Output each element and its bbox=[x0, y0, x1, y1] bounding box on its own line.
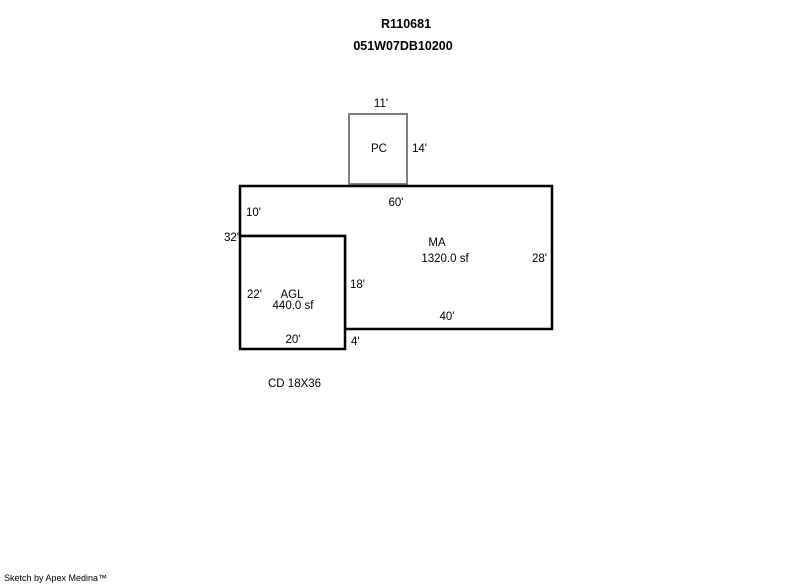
ma-square-footage: 1320.0 sf bbox=[421, 253, 469, 265]
pc-area-label: PC bbox=[371, 143, 387, 155]
cd-note: CD 18X36 bbox=[268, 378, 321, 390]
page-subtitle: 051W07DB10200 bbox=[353, 39, 452, 53]
ma-bottom-dimension: 40' bbox=[440, 311, 455, 323]
left-total-dimension: 32' bbox=[224, 232, 239, 244]
pc-right-dimension: 14' bbox=[412, 143, 427, 155]
sketch-drawing: R110681 051W07DB10200 11' PC 14' 60' 10'… bbox=[0, 0, 800, 587]
agl-square-footage: 440.0 sf bbox=[273, 300, 315, 312]
ma-area-label: MA bbox=[428, 237, 446, 249]
page-title: R110681 bbox=[381, 17, 431, 31]
ma-upper-left-dimension: 10' bbox=[246, 207, 261, 219]
sketch-credit: Sketch by Apex Medina™ bbox=[4, 573, 107, 583]
agl-left-dimension: 22' bbox=[247, 289, 262, 301]
agl-bottom-dimension: 20' bbox=[286, 334, 301, 346]
ma-step-dimension: 4' bbox=[351, 336, 360, 348]
ma-right-dimension: 28' bbox=[532, 253, 547, 265]
sketch-page: R110681 051W07DB10200 11' PC 14' 60' 10'… bbox=[0, 0, 800, 587]
pc-top-dimension: 11' bbox=[374, 98, 388, 110]
ma-notch-dimension: 18' bbox=[350, 279, 365, 291]
ma-top-dimension: 60' bbox=[389, 197, 404, 209]
